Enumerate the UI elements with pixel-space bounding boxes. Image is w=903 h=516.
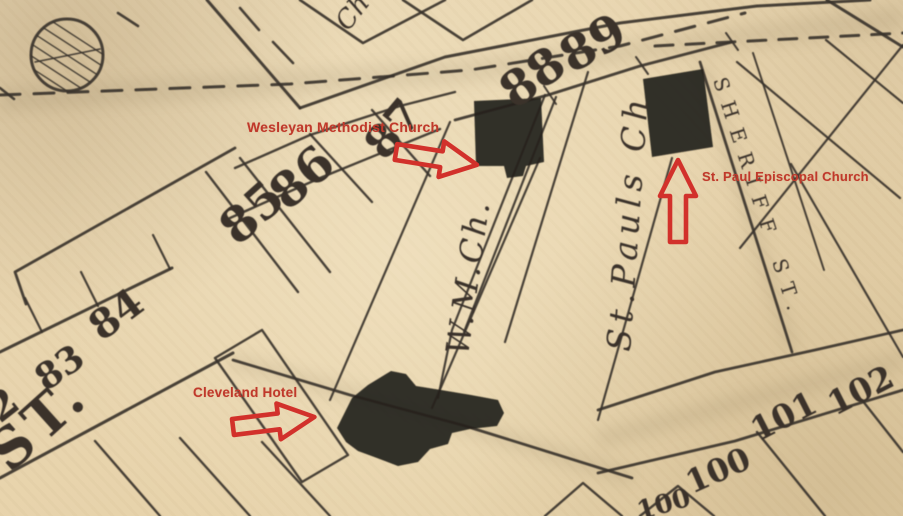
sheriff-street-label: SHERIFF ST. bbox=[708, 74, 809, 323]
lot-number-100: 100 bbox=[680, 439, 756, 501]
lot-boundary-lines-topleft bbox=[0, 0, 300, 304]
map-canvas: 2 83 84 85 86 87 88 89 100 101 102 100 C… bbox=[0, 0, 903, 516]
hatched-circle-symbol bbox=[10, 0, 110, 143]
wesleyan-annotation-label: Wesleyan Methodist Church bbox=[247, 119, 439, 135]
cleveland-annotation-label: Cleveland Hotel bbox=[193, 385, 297, 400]
st-pauls-map-label: St.Pauls Ch bbox=[599, 92, 656, 353]
historic-plat-map: 2 83 84 85 86 87 88 89 100 101 102 100 C… bbox=[0, 0, 903, 516]
st-paul-arrow-up-icon bbox=[660, 160, 696, 242]
cleveland-hotel-building bbox=[337, 371, 504, 466]
st-paul-annotation-label: St. Paul Episcopal Church bbox=[702, 169, 869, 184]
st-street-label: ST. bbox=[0, 361, 101, 483]
church-label-partial: Ch bbox=[330, 0, 376, 36]
lot-number-100-partial: 100 bbox=[634, 483, 694, 516]
cleveland-arrow-right-icon bbox=[231, 399, 317, 445]
